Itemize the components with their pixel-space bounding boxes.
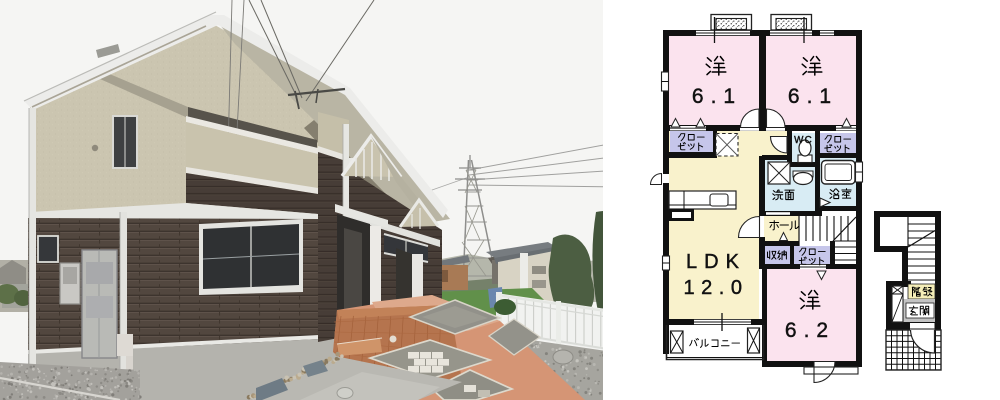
svg-text:WC: WC [794, 135, 813, 146]
svg-text:6.2: 6.2 [785, 319, 835, 342]
svg-text:6.1: 6.1 [788, 85, 838, 108]
svg-text:LDK: LDK [686, 251, 746, 273]
svg-text:12.0: 12.0 [684, 277, 749, 299]
svg-text:6.1: 6.1 [692, 85, 742, 108]
